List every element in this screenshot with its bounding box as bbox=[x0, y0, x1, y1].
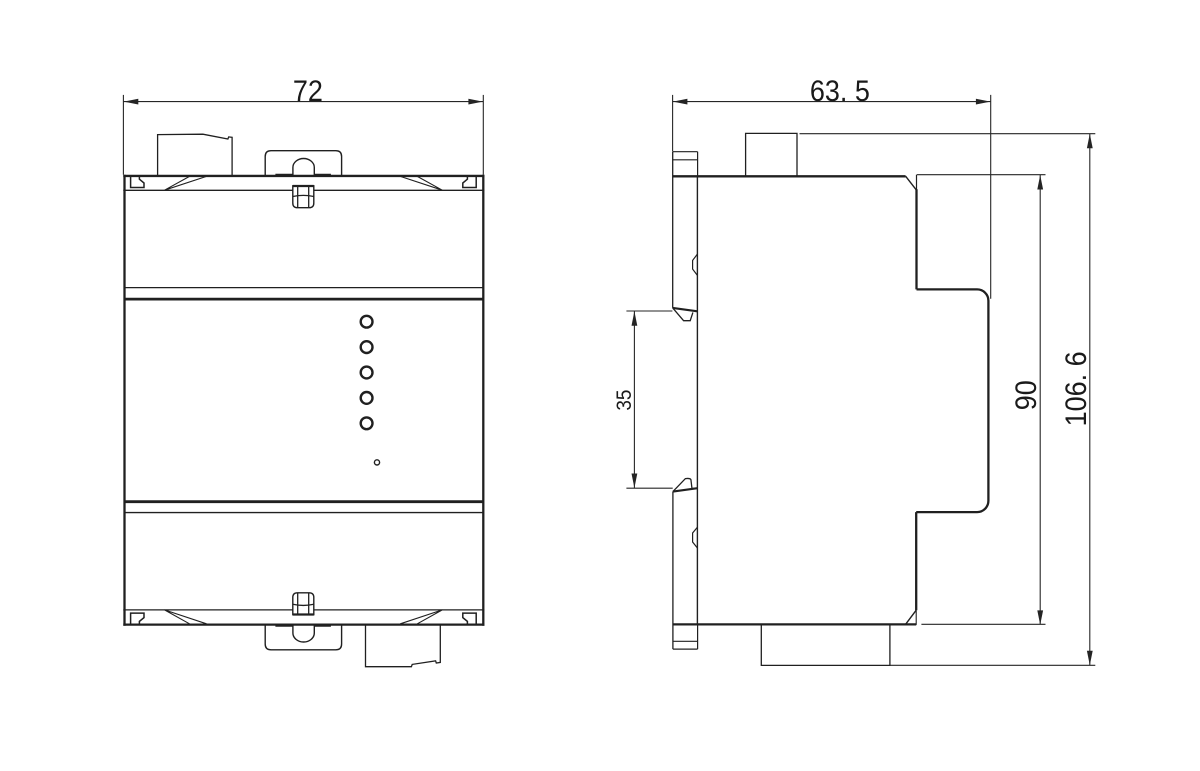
svg-text:106. 6: 106. 6 bbox=[1060, 351, 1094, 426]
svg-text:90: 90 bbox=[1010, 380, 1044, 410]
svg-text:35: 35 bbox=[613, 390, 636, 411]
svg-text:72: 72 bbox=[293, 75, 323, 109]
svg-text:63. 5: 63. 5 bbox=[810, 75, 870, 109]
